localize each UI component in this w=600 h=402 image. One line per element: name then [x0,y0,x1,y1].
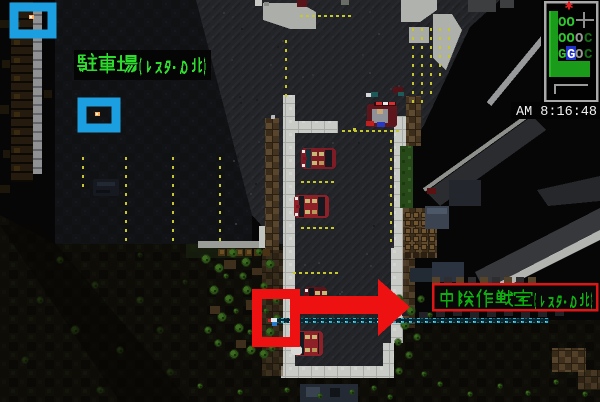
svg-text:C: C [584,47,593,63]
svg-text:G: G [558,47,566,63]
svg-text:OO: OO [558,15,575,31]
svg-text:C: C [584,31,593,47]
svg-text:OO: OO [558,31,575,47]
svg-text:O: O [575,31,583,47]
svg-text:AM 8:16:48: AM 8:16:48 [516,105,597,120]
svg-text:O: O [575,47,583,63]
